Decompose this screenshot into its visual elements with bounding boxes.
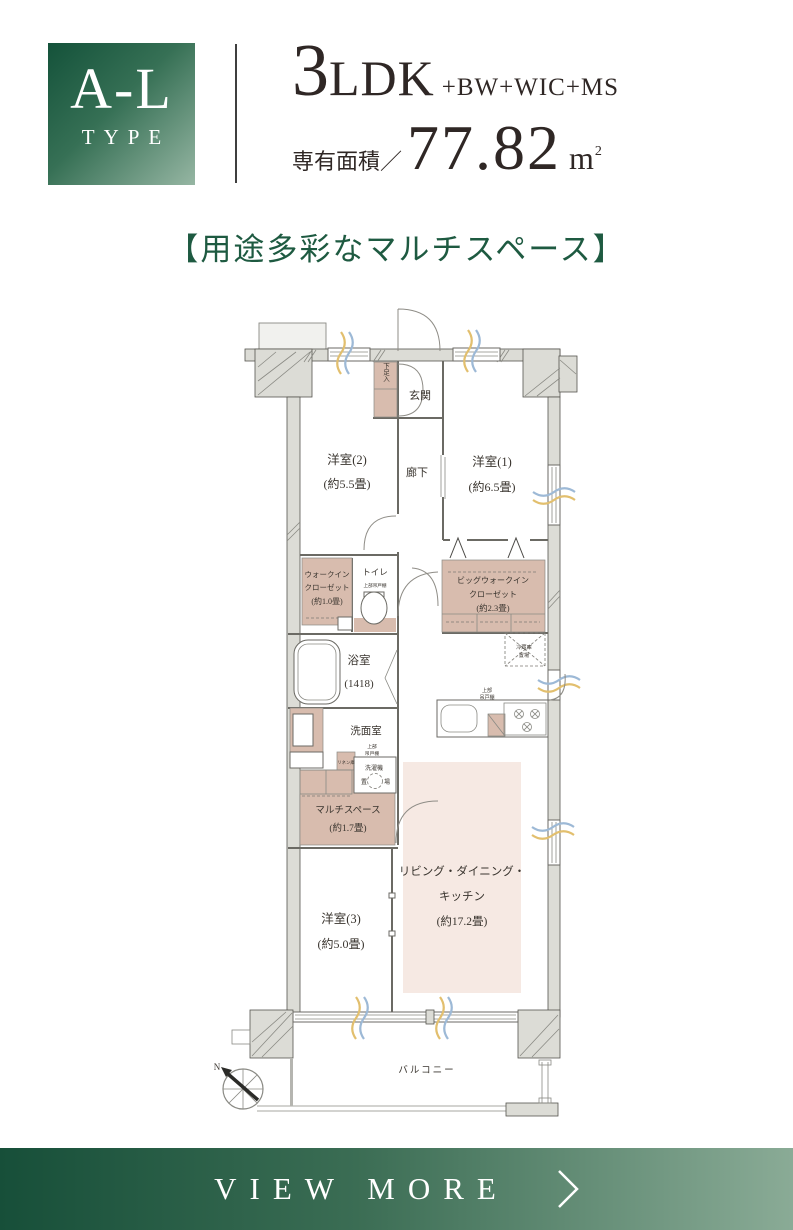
label-multi-space: マルチスペース <box>315 805 380 816</box>
label-laundry-cabinet-1: 上部 <box>367 743 377 750</box>
bath-door <box>385 650 397 704</box>
type-badge-label: A-L <box>48 60 195 118</box>
label-west1-size: (約6.5畳) <box>469 479 516 494</box>
label-wic-size: (約1.0畳) <box>311 596 343 606</box>
label-bath: 浴室 <box>348 653 371 667</box>
label-ldk-1: リビング・ダイニング・ <box>399 864 526 878</box>
label-west2-size: (約5.5畳) <box>324 476 371 491</box>
label-fridge-1: 冷蔵庫 <box>516 643 532 651</box>
label-bwic-1: ビッグウォークイン <box>457 575 529 585</box>
window-kitchen <box>548 670 560 700</box>
catch-copy: 【用途多彩なマルチスペース】 <box>0 224 793 269</box>
area-value: 77.82 <box>407 116 561 180</box>
label-bwic-size: (約2.3畳) <box>476 603 509 613</box>
bathtub <box>294 640 340 704</box>
header-divider <box>235 44 237 183</box>
plan-letters: LDK <box>329 49 435 107</box>
label-kitchen-cabinet-1: 上部 <box>482 687 492 694</box>
area-unit: m <box>569 140 594 177</box>
label-laundry-cabinet-2: 吊戸棚 <box>365 750 380 757</box>
label-laundry-3: 場 <box>384 778 390 786</box>
label-west1: 洋室(1) <box>472 454 512 469</box>
column-top-left <box>255 349 312 397</box>
label-toilet: トイレ <box>362 567 388 577</box>
area-unit-sup: 2 <box>595 144 602 160</box>
label-balcony: バルコニー <box>398 1065 455 1076</box>
compass-icon <box>221 1067 263 1109</box>
balcony-windows <box>293 1012 518 1022</box>
label-laundry-1: 洗濯機 <box>365 764 383 772</box>
label-ldk-2: キッチン <box>439 890 485 903</box>
entrance-door <box>398 309 440 351</box>
label-wic-2: クローゼット <box>305 582 350 592</box>
label-multi-size: (約1.7畳) <box>329 822 366 834</box>
area-label: 専有面積／ <box>292 144 402 176</box>
chevron-right-icon <box>557 1169 579 1209</box>
label-bath-size: (1418) <box>344 678 374 690</box>
label-toilet-cabinet: 上部吊戸棚 <box>364 582 387 589</box>
plan-suffix: +BW+WIC+MS <box>442 74 619 102</box>
label-genkan: 玄関 <box>409 388 431 402</box>
label-linen: リネン庫 <box>337 759 355 766</box>
plan-title-block: 3 LDK +BW+WIC+MS 専有面積／ 77.82 m 2 <box>292 34 619 180</box>
plan-area-line: 専有面積／ 77.82 m 2 <box>292 116 619 180</box>
toilet-bowl <box>361 592 387 624</box>
floorplan-page: A-L TYPE 3 LDK +BW+WIC+MS 専有面積／ 77.82 m … <box>0 0 793 1230</box>
label-wic-1: ウォークイン <box>305 570 350 579</box>
laundry-space <box>354 757 396 793</box>
exterior-box <box>259 323 326 352</box>
west2-door <box>364 516 396 550</box>
label-washroom: 洗面室 <box>350 724 382 737</box>
label-west2: 洋室(2) <box>327 452 367 467</box>
plan-number: 3 <box>292 34 329 108</box>
label-hall: 廊下 <box>406 465 428 479</box>
label-laundry-2: 置 <box>361 779 367 786</box>
label-west3-size: (約5.0畳) <box>318 936 365 951</box>
label-north: N <box>214 1062 221 1072</box>
column-top-right <box>523 349 560 397</box>
view-more-label: VIEW MORE <box>214 1171 509 1207</box>
label-bwic-2: クローゼット <box>469 589 517 599</box>
label-ldk-size: (約17.2畳) <box>437 914 488 928</box>
label-kitchen-cabinet-2: 吊戸棚 <box>479 694 494 701</box>
type-badge-sub: TYPE <box>48 125 195 150</box>
label-west3: 洋室(3) <box>321 911 361 926</box>
floorplan-image: 玄関 下足入 洋室(2) (約5.5畳) 廊下 洋室(1) (約6.5畳) ウォ… <box>205 300 585 1120</box>
label-fridge-2: 置場 <box>519 651 529 659</box>
type-badge: A-L TYPE <box>48 43 195 185</box>
view-more-button[interactable]: VIEW MORE <box>0 1148 793 1230</box>
plan-layout-line: 3 LDK +BW+WIC+MS <box>292 34 619 108</box>
